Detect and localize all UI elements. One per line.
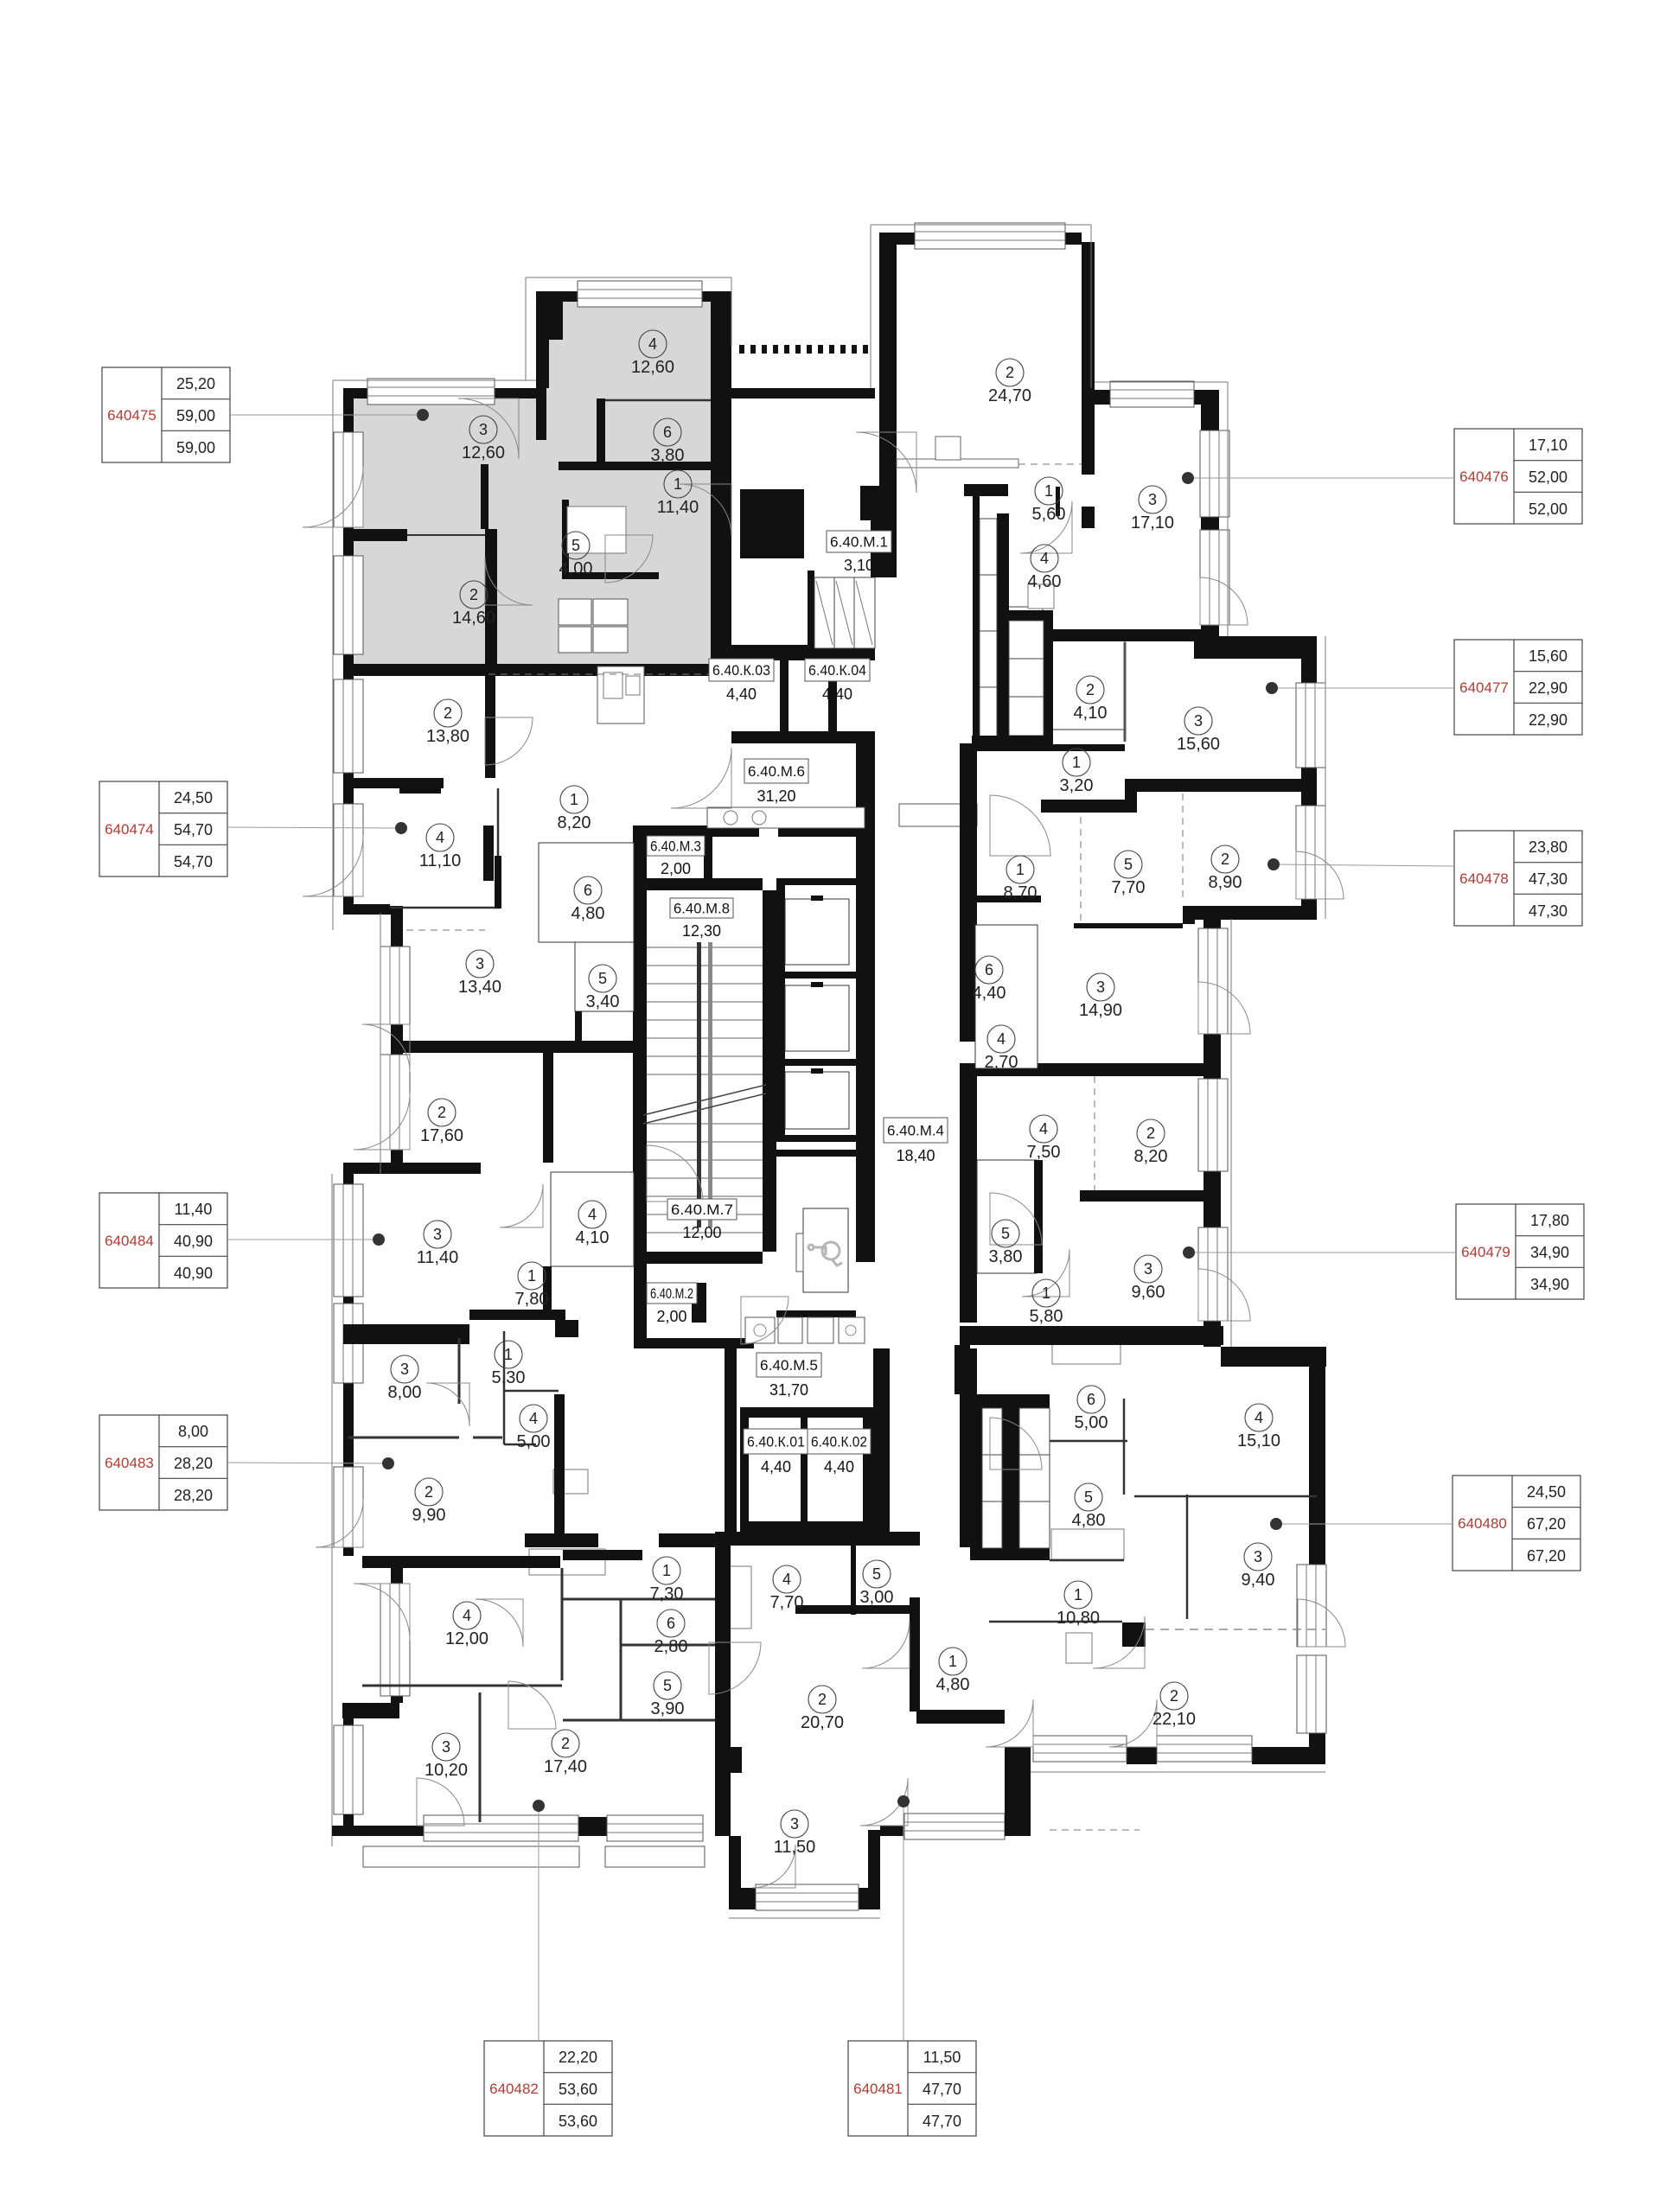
svg-text:47,70: 47,70 — [923, 2113, 961, 2130]
svg-text:40,90: 40,90 — [174, 1265, 213, 1282]
svg-text:4,40: 4,40 — [761, 1458, 791, 1476]
svg-text:14,90: 14,90 — [1079, 1001, 1122, 1020]
svg-text:8,20: 8,20 — [558, 813, 591, 832]
svg-text:31,70: 31,70 — [769, 1381, 808, 1399]
svg-text:2,00: 2,00 — [661, 860, 691, 877]
svg-text:52,00: 52,00 — [1529, 469, 1567, 486]
svg-text:5,00: 5,00 — [1075, 1413, 1108, 1432]
svg-text:4,80: 4,80 — [936, 1675, 970, 1694]
svg-text:47,70: 47,70 — [923, 2081, 961, 2098]
svg-text:17,60: 17,60 — [420, 1126, 463, 1145]
svg-text:1: 1 — [504, 1346, 513, 1363]
svg-text:8,90: 8,90 — [1209, 873, 1242, 892]
svg-text:3: 3 — [1254, 1548, 1262, 1565]
svg-text:22,90: 22,90 — [1529, 679, 1567, 697]
svg-text:22,10: 22,10 — [1152, 1710, 1196, 1729]
svg-text:6.40.К.04: 6.40.К.04 — [808, 663, 866, 679]
svg-text:67,20: 67,20 — [1527, 1547, 1566, 1565]
svg-text:640483: 640483 — [105, 1455, 154, 1471]
svg-text:3: 3 — [790, 1815, 799, 1833]
svg-text:47,30: 47,30 — [1529, 870, 1567, 888]
svg-text:34,90: 34,90 — [1530, 1276, 1569, 1293]
svg-text:6.40.М.2: 6.40.М.2 — [650, 1286, 693, 1302]
svg-text:6.40.М.1: 6.40.М.1 — [830, 535, 888, 551]
svg-text:2,00: 2,00 — [656, 1308, 686, 1325]
svg-text:17,10: 17,10 — [1529, 437, 1567, 454]
svg-text:4: 4 — [588, 1206, 597, 1223]
svg-text:7,70: 7,70 — [1112, 878, 1146, 897]
svg-text:24,50: 24,50 — [174, 789, 213, 806]
svg-text:17,80: 17,80 — [1530, 1212, 1569, 1229]
svg-text:4: 4 — [1040, 550, 1049, 567]
svg-text:8,70: 8,70 — [1004, 883, 1037, 902]
svg-text:5: 5 — [1084, 1488, 1093, 1506]
svg-text:13,40: 13,40 — [458, 978, 501, 997]
svg-text:12,00: 12,00 — [682, 1224, 721, 1241]
svg-text:4,80: 4,80 — [1072, 1511, 1106, 1530]
svg-text:54,70: 54,70 — [174, 821, 213, 838]
svg-text:640477: 640477 — [1459, 679, 1509, 696]
svg-text:2: 2 — [1170, 1687, 1178, 1705]
svg-text:5,00: 5,00 — [517, 1432, 551, 1451]
svg-text:2: 2 — [469, 586, 478, 603]
svg-text:4,40: 4,40 — [822, 685, 852, 703]
svg-text:1: 1 — [1042, 1284, 1050, 1302]
svg-text:20,70: 20,70 — [801, 1713, 844, 1732]
svg-text:15,10: 15,10 — [1237, 1431, 1280, 1450]
svg-text:3: 3 — [1194, 712, 1203, 730]
svg-text:6.40.К.02: 6.40.К.02 — [811, 1435, 867, 1450]
svg-text:3,80: 3,80 — [989, 1247, 1023, 1266]
svg-text:12,60: 12,60 — [631, 358, 674, 377]
svg-text:4,10: 4,10 — [1074, 704, 1108, 723]
svg-text:6.40.К.03: 6.40.К.03 — [712, 663, 770, 679]
svg-text:4: 4 — [1255, 1409, 1263, 1426]
svg-text:9,60: 9,60 — [1132, 1283, 1165, 1302]
svg-text:4,00: 4,00 — [559, 559, 593, 578]
svg-text:18,40: 18,40 — [896, 1147, 935, 1164]
svg-text:2: 2 — [1006, 364, 1014, 381]
svg-text:2: 2 — [1086, 681, 1095, 698]
svg-text:5: 5 — [872, 1565, 881, 1583]
svg-text:4: 4 — [529, 1410, 538, 1427]
svg-text:12,30: 12,30 — [682, 922, 721, 940]
svg-text:2: 2 — [1146, 1125, 1155, 1142]
svg-text:23,80: 23,80 — [1529, 838, 1567, 856]
svg-text:6: 6 — [1087, 1391, 1095, 1408]
svg-text:9,40: 9,40 — [1242, 1571, 1275, 1590]
svg-text:1: 1 — [1072, 754, 1081, 771]
svg-text:4,60: 4,60 — [1028, 572, 1062, 591]
svg-text:2: 2 — [444, 704, 452, 722]
svg-text:4: 4 — [648, 335, 657, 353]
svg-text:11,40: 11,40 — [417, 1248, 459, 1267]
svg-text:4: 4 — [997, 1030, 1006, 1048]
svg-text:4,40: 4,40 — [973, 984, 1006, 1003]
svg-text:53,60: 53,60 — [559, 2081, 597, 2098]
svg-text:28,20: 28,20 — [174, 1455, 213, 1472]
svg-text:1: 1 — [674, 475, 682, 493]
svg-text:6: 6 — [663, 424, 672, 441]
svg-text:17,10: 17,10 — [1131, 513, 1174, 532]
svg-text:1: 1 — [1074, 1586, 1082, 1603]
svg-text:2: 2 — [818, 1691, 827, 1708]
svg-text:2: 2 — [437, 1104, 446, 1121]
svg-text:7,70: 7,70 — [770, 1593, 804, 1612]
svg-text:4: 4 — [1039, 1120, 1048, 1138]
svg-text:4,40: 4,40 — [726, 685, 757, 703]
svg-text:3: 3 — [476, 955, 484, 972]
svg-text:6: 6 — [985, 961, 993, 979]
svg-text:4: 4 — [436, 829, 444, 846]
svg-text:2,80: 2,80 — [654, 1637, 688, 1656]
svg-text:5,80: 5,80 — [1030, 1307, 1063, 1326]
svg-text:3: 3 — [442, 1738, 450, 1756]
svg-text:11,10: 11,10 — [419, 851, 462, 870]
svg-text:5: 5 — [1124, 856, 1133, 873]
svg-text:640478: 640478 — [1459, 870, 1509, 887]
svg-text:25,20: 25,20 — [176, 375, 215, 392]
svg-text:12,00: 12,00 — [445, 1629, 488, 1648]
svg-text:6.40.М.8: 6.40.М.8 — [674, 902, 730, 917]
svg-text:1: 1 — [948, 1653, 957, 1670]
svg-text:11,50: 11,50 — [774, 1838, 816, 1857]
svg-text:10,20: 10,20 — [425, 1761, 468, 1780]
svg-text:53,60: 53,60 — [559, 2113, 597, 2130]
svg-text:3: 3 — [479, 421, 488, 438]
svg-text:11,50: 11,50 — [923, 2049, 961, 2066]
svg-text:640475: 640475 — [107, 407, 156, 424]
svg-text:22,20: 22,20 — [559, 2049, 597, 2066]
svg-text:8,00: 8,00 — [388, 1383, 422, 1402]
svg-text:3: 3 — [433, 1226, 442, 1243]
svg-text:31,20: 31,20 — [757, 787, 795, 805]
svg-text:15,60: 15,60 — [1177, 735, 1220, 754]
svg-text:5,30: 5,30 — [492, 1368, 526, 1387]
svg-text:2: 2 — [425, 1483, 433, 1501]
svg-text:4: 4 — [782, 1571, 791, 1588]
svg-text:11,40: 11,40 — [175, 1201, 213, 1218]
svg-text:3: 3 — [1148, 491, 1157, 508]
svg-text:12,60: 12,60 — [462, 443, 505, 462]
svg-text:24,70: 24,70 — [988, 386, 1031, 405]
svg-text:28,20: 28,20 — [174, 1487, 213, 1504]
svg-text:1: 1 — [1016, 861, 1025, 878]
svg-text:5: 5 — [571, 537, 580, 554]
svg-text:1: 1 — [570, 791, 578, 808]
svg-text:6.40.М.4: 6.40.М.4 — [887, 1124, 944, 1139]
svg-text:6.40.М.6: 6.40.М.6 — [748, 764, 805, 780]
svg-text:2,70: 2,70 — [985, 1053, 1018, 1072]
svg-text:10,80: 10,80 — [1057, 1609, 1100, 1628]
svg-text:24,50: 24,50 — [1527, 1483, 1566, 1501]
svg-text:640484: 640484 — [105, 1233, 154, 1249]
svg-text:59,00: 59,00 — [176, 407, 215, 424]
svg-text:1: 1 — [1044, 482, 1053, 500]
svg-text:22,90: 22,90 — [1529, 711, 1567, 729]
svg-text:4,40: 4,40 — [824, 1458, 854, 1476]
svg-text:47,30: 47,30 — [1529, 902, 1567, 920]
svg-text:3: 3 — [1144, 1260, 1152, 1278]
svg-text:8,00: 8,00 — [178, 1423, 208, 1440]
svg-text:3,00: 3,00 — [860, 1588, 894, 1607]
svg-text:2: 2 — [561, 1735, 570, 1752]
svg-text:5: 5 — [663, 1677, 672, 1694]
svg-text:5: 5 — [1001, 1225, 1010, 1242]
svg-text:3,10: 3,10 — [844, 557, 874, 574]
svg-text:3: 3 — [1096, 979, 1105, 996]
svg-text:54,70: 54,70 — [174, 853, 213, 870]
svg-text:4,10: 4,10 — [576, 1228, 610, 1247]
svg-text:3,40: 3,40 — [586, 992, 620, 1011]
svg-text:4,80: 4,80 — [571, 904, 605, 923]
svg-text:3,90: 3,90 — [651, 1699, 685, 1718]
svg-text:40,90: 40,90 — [174, 1233, 213, 1250]
svg-text:640479: 640479 — [1461, 1244, 1510, 1260]
svg-text:1: 1 — [662, 1562, 671, 1579]
svg-text:59,00: 59,00 — [176, 439, 215, 456]
svg-text:6.40.М.5: 6.40.М.5 — [760, 1358, 818, 1374]
svg-text:34,90: 34,90 — [1530, 1244, 1569, 1261]
svg-text:13,80: 13,80 — [426, 727, 469, 746]
svg-text:640482: 640482 — [489, 2081, 539, 2097]
svg-text:640480: 640480 — [1458, 1515, 1507, 1532]
svg-text:67,20: 67,20 — [1527, 1515, 1566, 1533]
svg-text:6: 6 — [584, 882, 592, 899]
svg-text:9,90: 9,90 — [412, 1506, 446, 1525]
svg-text:17,40: 17,40 — [544, 1757, 587, 1776]
svg-text:6.40.М.3: 6.40.М.3 — [650, 839, 701, 855]
svg-text:52,00: 52,00 — [1529, 500, 1567, 518]
svg-text:7,80: 7,80 — [515, 1290, 549, 1309]
svg-text:15,60: 15,60 — [1529, 647, 1567, 665]
svg-text:3,80: 3,80 — [651, 446, 685, 465]
svg-text:7,30: 7,30 — [650, 1584, 684, 1603]
svg-text:11,40: 11,40 — [657, 498, 699, 517]
svg-text:6: 6 — [667, 1615, 675, 1632]
svg-text:3: 3 — [400, 1361, 409, 1378]
svg-text:7,50: 7,50 — [1027, 1143, 1061, 1162]
svg-text:6.40.К.01: 6.40.К.01 — [747, 1435, 805, 1450]
svg-text:6.40.М.7: 6.40.М.7 — [671, 1202, 733, 1218]
svg-text:4: 4 — [463, 1607, 471, 1624]
svg-text:3,20: 3,20 — [1060, 776, 1094, 795]
svg-text:2: 2 — [1221, 851, 1229, 868]
svg-text:8,20: 8,20 — [1134, 1147, 1168, 1166]
svg-text:5,60: 5,60 — [1032, 505, 1066, 524]
svg-text:640474: 640474 — [105, 821, 154, 838]
svg-text:640476: 640476 — [1459, 469, 1509, 485]
svg-text:640481: 640481 — [853, 2081, 903, 2097]
svg-text:1: 1 — [527, 1267, 536, 1284]
svg-text:5: 5 — [598, 970, 607, 987]
svg-text:14,60: 14,60 — [452, 609, 495, 628]
